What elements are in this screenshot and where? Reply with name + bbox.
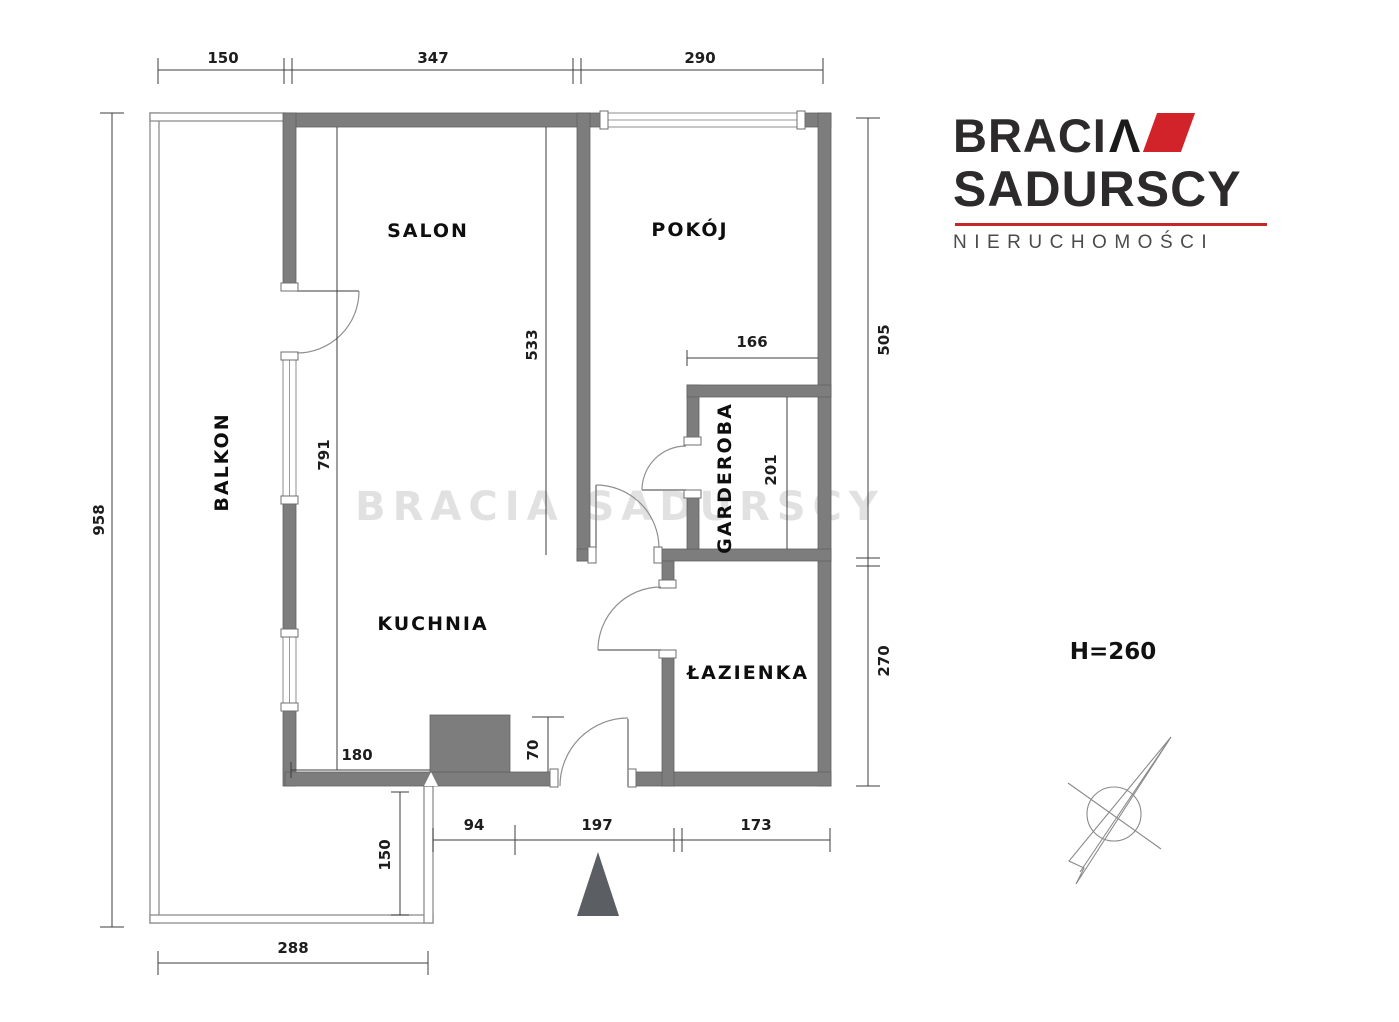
- room-label-lazienka: ŁAZIENKA: [686, 662, 809, 684]
- entrance-door-opening: [558, 771, 628, 787]
- balcony-wall-right: [424, 786, 433, 923]
- dim-garderoba-depth: 201: [762, 454, 780, 485]
- logo-tagline: NIERUCHOMOŚCI: [953, 233, 1283, 252]
- balcony-door-opening: [282, 291, 297, 352]
- dim-right-upper: 505: [875, 324, 893, 355]
- room-label-salon: SALON: [387, 220, 469, 242]
- logo-brand-bottom: SADURSCY: [953, 164, 1283, 214]
- dim-top-salon: 347: [417, 49, 448, 67]
- logo-flag-icon: [1143, 113, 1195, 152]
- dim-shaft-width: 70: [524, 740, 542, 761]
- dim-bottom-entry: 197: [581, 816, 612, 834]
- shaft-block: [430, 715, 510, 772]
- wall-right: [818, 113, 831, 786]
- north-triangle-icon: [577, 852, 619, 916]
- balcony-wall-left: [150, 113, 159, 923]
- dim-top-pokoj: 290: [684, 49, 715, 67]
- room-label-kuchnia: KUCHNIA: [377, 613, 488, 635]
- logo-divider: [955, 223, 1267, 226]
- floor-plan-page: BRACIA SADURSCY: [0, 0, 1399, 1022]
- wall-garderoba-top: [687, 385, 831, 397]
- dim-bottom-bath: 173: [740, 816, 771, 834]
- wall-salon-pokoj: [577, 113, 590, 561]
- room-label-pokoj: POKÓJ: [651, 217, 728, 241]
- dim-salon-depth: 533: [523, 329, 541, 360]
- ceiling-height-label: H=260: [1070, 639, 1157, 665]
- agency-logo: BRACI Λ SADURSCY NIERUCHOMOŚCI: [953, 112, 1283, 252]
- dim-garderoba-width: 166: [736, 333, 767, 351]
- dim-interior-height: 791: [315, 439, 333, 470]
- dim-balcony-depth: 150: [376, 839, 394, 870]
- dim-left-total: 958: [90, 504, 108, 535]
- dim-bottom-hall: 94: [464, 816, 485, 834]
- room-label-balkon: BALKON: [211, 412, 233, 511]
- pokoj-door-opening: [596, 548, 654, 562]
- dim-kitchen-width: 180: [341, 746, 372, 764]
- watermark-text: BRACIA SADURSCY: [355, 484, 885, 530]
- compass-icon: [1068, 737, 1171, 884]
- apartment-interior: [285, 113, 831, 786]
- room-label-garderoba: GARDEROBA: [714, 402, 736, 554]
- logo-brand-row: BRACI Λ: [953, 112, 1283, 159]
- bathroom-door-opening: [661, 588, 675, 650]
- garderoba-door-opening: [686, 445, 700, 490]
- logo-brand-accent: Λ: [1109, 112, 1140, 159]
- balcony-wall-bottom: [150, 915, 433, 923]
- dim-balcony-width: 288: [277, 939, 308, 957]
- dim-top-balcony: 150: [207, 49, 238, 67]
- logo-brand-top: BRACI: [953, 112, 1107, 159]
- balcony-wall-top: [150, 113, 285, 121]
- dim-right-lower: 270: [875, 645, 893, 676]
